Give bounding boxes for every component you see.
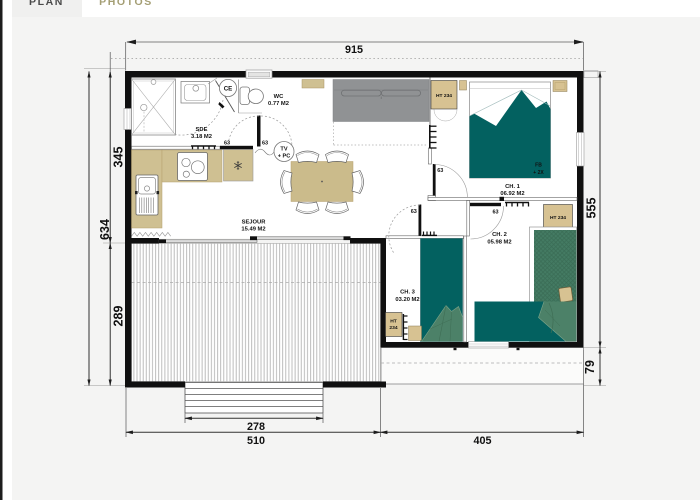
svg-text:555: 555 (585, 198, 599, 219)
svg-text:63: 63 (224, 140, 230, 146)
svg-text:0.77 M2: 0.77 M2 (268, 101, 289, 107)
svg-text:SDE: SDE (196, 127, 208, 133)
svg-text:CH. 2: CH. 2 (492, 232, 507, 238)
svg-text:HT 234: HT 234 (436, 93, 452, 99)
svg-text:+ 2X: + 2X (533, 170, 544, 176)
svg-text:79: 79 (583, 360, 597, 374)
svg-text:03.20 M2: 03.20 M2 (395, 297, 419, 303)
svg-text:PHOTOS: PHOTOS (99, 0, 153, 8)
svg-text:915: 915 (345, 44, 363, 56)
svg-text:FB: FB (535, 163, 542, 169)
svg-text:CH. 1: CH. 1 (505, 184, 521, 190)
svg-text:3.18 M2: 3.18 M2 (191, 134, 212, 140)
svg-text:SEJOUR: SEJOUR (242, 220, 267, 226)
svg-text:+ PC: + PC (278, 154, 291, 160)
svg-text:63: 63 (492, 210, 498, 216)
svg-text:15.49 M2: 15.49 M2 (241, 227, 265, 233)
svg-text:63: 63 (262, 140, 268, 146)
svg-text:WC: WC (274, 94, 284, 100)
svg-text:345: 345 (112, 147, 126, 168)
svg-text:05.98 M2: 05.98 M2 (487, 240, 511, 246)
svg-text:63: 63 (411, 209, 417, 215)
svg-text:278: 278 (247, 421, 265, 433)
svg-text:06.92 M2: 06.92 M2 (500, 191, 524, 197)
svg-text:HT 234: HT 234 (550, 215, 566, 221)
svg-text:HT: HT (390, 319, 397, 325)
svg-text:289: 289 (112, 306, 126, 327)
svg-text:CH. 3: CH. 3 (400, 290, 416, 296)
svg-text:PLAN: PLAN (29, 0, 64, 8)
svg-text:TV: TV (280, 147, 287, 153)
svg-text:234: 234 (389, 325, 397, 331)
svg-text:405: 405 (473, 435, 491, 447)
svg-text:510: 510 (247, 435, 265, 447)
svg-text:CE: CE (224, 85, 233, 92)
svg-text:63: 63 (437, 168, 443, 174)
